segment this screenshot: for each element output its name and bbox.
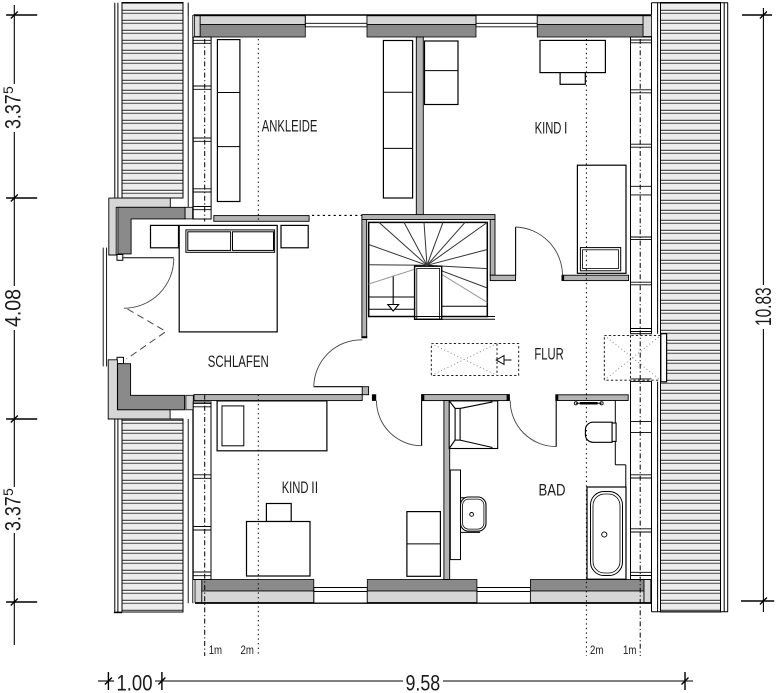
svg-text:FLUR: FLUR <box>534 346 563 364</box>
svg-text:10.83: 10.83 <box>751 287 776 326</box>
svg-text:BAD: BAD <box>539 482 566 500</box>
svg-text:4.08: 4.08 <box>1 289 26 327</box>
svg-text:1.00: 1.00 <box>117 671 153 693</box>
svg-text:5: 5 <box>0 488 16 496</box>
svg-text:ANKLEIDE: ANKLEIDE <box>262 118 318 136</box>
svg-text:3.37: 3.37 <box>1 496 26 531</box>
svg-text:KIND: KIND <box>282 479 309 497</box>
svg-text:5: 5 <box>0 86 16 94</box>
svg-text:I: I <box>564 120 567 138</box>
svg-text:II: II <box>311 479 318 497</box>
svg-text:3.37: 3.37 <box>1 94 26 129</box>
svg-text:SCHLAFEN: SCHLAFEN <box>208 353 269 371</box>
svg-text:9.58: 9.58 <box>406 671 441 693</box>
svg-text:KIND: KIND <box>535 120 562 138</box>
svg-text:1m: 1m <box>623 643 636 657</box>
svg-text:2m: 2m <box>241 643 254 657</box>
svg-text:2m: 2m <box>590 643 603 657</box>
svg-text:1m: 1m <box>209 643 222 657</box>
